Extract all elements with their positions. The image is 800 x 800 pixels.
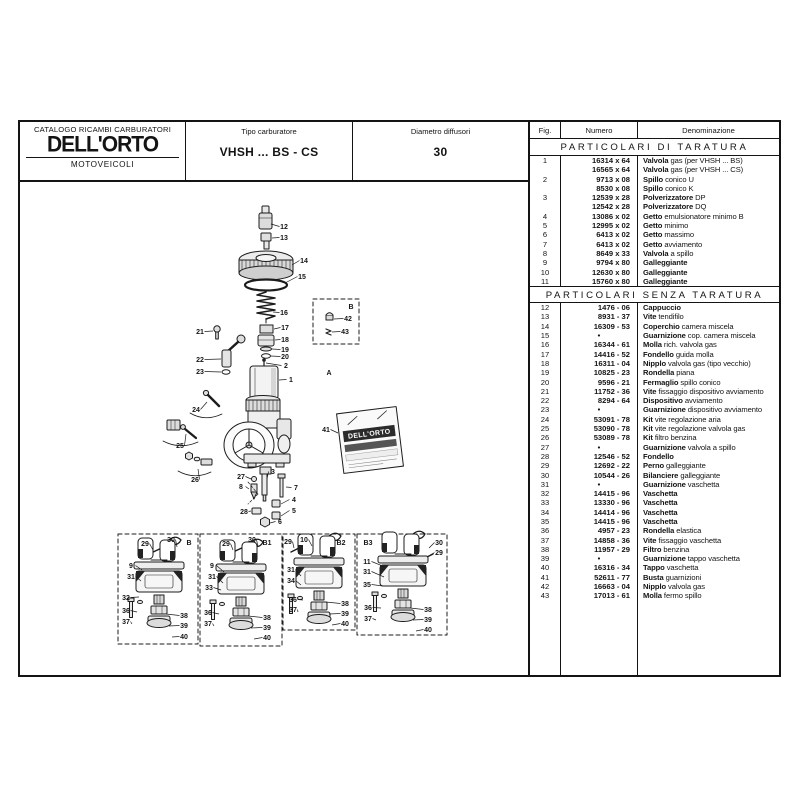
col-header-fig: Fig.: [530, 122, 561, 138]
diffuser-diameter-label: Diametro diffusori: [353, 122, 528, 136]
carb-type-cell: Tipo carburatore VHSH ... BS - CS: [186, 122, 353, 180]
diagram-callout: 16: [280, 310, 288, 317]
diagram-callout: 38: [180, 613, 188, 620]
diagram-callout: 41: [322, 427, 330, 434]
table-row: 76413 x 02Getto avviamento: [530, 240, 779, 249]
table-row: 228294 - 64Dispositivo avviamento: [530, 396, 779, 405]
diagram-callout: 38: [263, 615, 271, 622]
diagram-callout: 31: [127, 574, 135, 581]
table-row: 2653089 - 78Kit filtro benzina: [530, 433, 779, 442]
col-header-denominazione: Denominazione: [638, 122, 779, 138]
table-row: 209596 - 21Fermaglio spillo conico: [530, 378, 779, 387]
table-row: 23•Guarnizione dispositivo avviamento: [530, 405, 779, 414]
diagram-callout: 30: [248, 537, 256, 544]
diagram-callout: 21: [196, 329, 204, 336]
diagram-callout: 37: [204, 621, 212, 628]
diagram-letter: B: [186, 540, 191, 547]
brand-cell: CATALOGO RICAMBI CARBURATORI DELL'ORTO M…: [20, 122, 186, 180]
diagram-callout: 35: [363, 582, 371, 589]
diagram-callout: 39: [263, 625, 271, 632]
table-row: 364957 - 23Rondella elastica: [530, 526, 779, 535]
table-row: 2912692 - 22Perno galleggiante: [530, 461, 779, 470]
table-row: 88649 x 33Valvola a spillo: [530, 249, 779, 258]
diagram-callout: 32: [122, 595, 130, 602]
diagram-callout: 30: [435, 540, 443, 547]
table-row: 1012630 x 80Galleggiante: [530, 268, 779, 277]
diagram-callout: 30: [167, 537, 175, 544]
diagram-callout: 10: [300, 537, 308, 544]
page-header: CATALOGO RICAMBI CARBURATORI DELL'ORTO M…: [20, 122, 528, 182]
diagram-callout: 27: [237, 474, 245, 481]
diagram-letter: B3: [364, 540, 373, 547]
col-header-numero: Numero: [561, 122, 638, 138]
table-row: 1115760 x 80Galleggiante: [530, 277, 779, 286]
diagram-callout: 36: [122, 608, 130, 615]
diagram-callout: 20: [281, 354, 289, 361]
carburetor-exploded-view: DELL'ORTO: [20, 182, 528, 674]
table-row: 3214415 - 96Vaschetta: [530, 489, 779, 498]
table-row: 3010544 - 26Bilanciere galleggiante: [530, 471, 779, 480]
table-row: 12542 x 28Polverizzatore DQ: [530, 202, 779, 211]
table-row: 3811957 - 29Filtro benzina: [530, 545, 779, 554]
diagram-callout: 40: [341, 621, 349, 628]
diffuser-diameter-value: 30: [353, 136, 528, 159]
diagram-callout: 29: [435, 550, 443, 557]
diagram-callout: 42: [344, 316, 352, 323]
table-row: 4152611 - 77Busta guarnizioni: [530, 573, 779, 582]
table-row: 27•Guarnizione valvola a spillo: [530, 443, 779, 452]
table-row: 121476 - 06Cappuccio: [530, 303, 779, 312]
table-row: 1714416 - 52Fondello guida molla: [530, 350, 779, 359]
diagram-callout: 38: [341, 601, 349, 608]
diagram-callout: 36: [364, 605, 372, 612]
diagram-callout: 26: [191, 477, 199, 484]
diagram-callout: 40: [180, 634, 188, 641]
diagram-callout: 9: [129, 563, 133, 570]
diagram-callout: 39: [424, 617, 432, 624]
diagram-callout: 37: [122, 619, 130, 626]
diagram-callout: 18: [281, 337, 289, 344]
diagram-callout: 12: [280, 224, 288, 231]
diagram-callout: 37: [289, 607, 297, 614]
diagram-letter: B: [348, 304, 353, 311]
diagram-callout: 39: [341, 611, 349, 618]
table-row: 1816311 - 04Nipplo valvola gas (tipo vec…: [530, 359, 779, 368]
diagram-callout: 37: [364, 616, 372, 623]
diagram-callout: 7: [294, 485, 298, 492]
diagram-callout: 43: [341, 329, 349, 336]
table-row: 2812546 - 52Fondello: [530, 452, 779, 461]
diagram-callout: 8: [239, 484, 243, 491]
diagram-callout: 6: [278, 519, 282, 526]
diagram-letter: A: [326, 370, 331, 377]
parts-table-body: PARTICOLARI DI TARATURA116314 x 64Valvol…: [530, 139, 779, 601]
table-row: 312539 x 28Polverizzatore DP: [530, 193, 779, 202]
diffuser-diameter-cell: Diametro diffusori 30: [353, 122, 528, 180]
table-row: 1616344 - 61Molla rich. valvola gas: [530, 340, 779, 349]
diagram-callout: 38: [424, 607, 432, 614]
diagram-callout: 34: [287, 578, 295, 585]
carb-type-label: Tipo carburatore: [186, 122, 352, 136]
table-filler: [530, 601, 779, 675]
diagram-callout: 9: [210, 563, 214, 570]
division-label: MOTOVEICOLI: [20, 158, 185, 169]
table-row: 2111752 - 36Vite fissaggio dispositivo a…: [530, 387, 779, 396]
table-row: 2453091 - 78Kit vite regolazione aria: [530, 415, 779, 424]
diagram-callout: 29: [141, 541, 149, 548]
diagram-callout: 29: [222, 541, 230, 548]
brand-logo: DELL'ORTO: [20, 133, 185, 156]
diagram-callout: 22: [196, 357, 204, 364]
table-row: 2553090 - 78Kit vite regolazione valvola…: [530, 424, 779, 433]
diagram-callout: 17: [281, 325, 289, 332]
left-column: CATALOGO RICAMBI CARBURATORI DELL'ORTO M…: [20, 122, 530, 675]
table-row: 116314 x 64Valvola gas (per VHSH ... BS): [530, 156, 779, 165]
diagram-callout: 31: [287, 567, 295, 574]
diagram-callout: 2: [284, 363, 288, 370]
diagram-callout: 28: [240, 509, 248, 516]
diagram-callout: 36: [204, 610, 212, 617]
diagram-callout: 3: [271, 469, 275, 476]
parts-table-header: Fig. Numero Denominazione: [530, 122, 779, 139]
diagram-letter: B2: [337, 540, 346, 547]
table-row: 39•Guarnizione tappo vaschetta: [530, 554, 779, 563]
table-row: 15•Guarnizione cop. camera miscela: [530, 331, 779, 340]
table-row: 413086 x 02Getto emulsionatore minimo B: [530, 212, 779, 221]
table-row: 99794 x 80Galleggiante: [530, 258, 779, 267]
section-title: PARTICOLARI SENZA TARATURA: [530, 286, 779, 303]
diagram-callout: 13: [280, 235, 288, 242]
diagram-callout: 40: [263, 635, 271, 642]
section-title: PARTICOLARI DI TARATURA: [530, 139, 779, 156]
carb-type-value: VHSH ... BS - CS: [186, 136, 352, 159]
diagram-callout: 39: [180, 623, 188, 630]
diagram-callout: 15: [298, 274, 306, 281]
table-row: 3514415 - 96Vaschetta: [530, 517, 779, 526]
table-row: 3414414 - 96Vaschetta: [530, 508, 779, 517]
table-row: 1416309 - 53Coperchio camera miscela: [530, 322, 779, 331]
catalog-page: CATALOGO RICAMBI CARBURATORI DELL'ORTO M…: [18, 120, 781, 677]
diagram-callout: 33: [205, 585, 213, 592]
diagram-callout: 31: [208, 574, 216, 581]
diagram-callout: 5: [292, 508, 296, 515]
diagram-callout: 1: [289, 377, 293, 384]
diagram-letter: B1: [263, 540, 272, 547]
table-row: 66413 x 02Getto massimo: [530, 230, 779, 239]
table-row: 8530 x 08Spillo conico K: [530, 184, 779, 193]
table-row: 31•Guarnizione vaschetta: [530, 480, 779, 489]
table-row: 3714858 - 36Vite fissaggio vaschetta: [530, 536, 779, 545]
parts-table: Fig. Numero Denominazione PARTICOLARI DI…: [530, 122, 779, 675]
table-row: 512995 x 02Getto minimo: [530, 221, 779, 230]
diagram-callout: 14: [300, 258, 308, 265]
diagram-callout: 19: [281, 347, 289, 354]
diagram-callout: 29: [284, 539, 292, 546]
diagram-callout: 25: [176, 443, 184, 450]
table-row: 3313330 - 96Vaschetta: [530, 498, 779, 507]
table-row: 1910825 - 23Rondella piana: [530, 368, 779, 377]
table-row: 29713 x 08Spillo conico U: [530, 175, 779, 184]
diagram-callout: 31: [363, 569, 371, 576]
table-row: 4216663 - 04Nipplo valvola gas: [530, 582, 779, 591]
table-row: 16565 x 64Valvola gas (per VHSH ... CS): [530, 165, 779, 174]
exploded-diagram: DELL'ORTO: [20, 182, 528, 675]
diagram-callout: 4: [292, 497, 296, 504]
diagram-callout: 23: [196, 369, 204, 376]
table-row: 4016316 - 34Tappo vaschetta: [530, 563, 779, 572]
diagram-callout: 24: [192, 407, 200, 414]
table-row: 138931 - 37Vite tendifilo: [530, 312, 779, 321]
diagram-callout: 36: [289, 597, 297, 604]
table-row: 4317013 - 61Molla fermo spillo: [530, 591, 779, 600]
diagram-callout: 11: [363, 559, 371, 566]
diagram-callout: 40: [424, 627, 432, 634]
